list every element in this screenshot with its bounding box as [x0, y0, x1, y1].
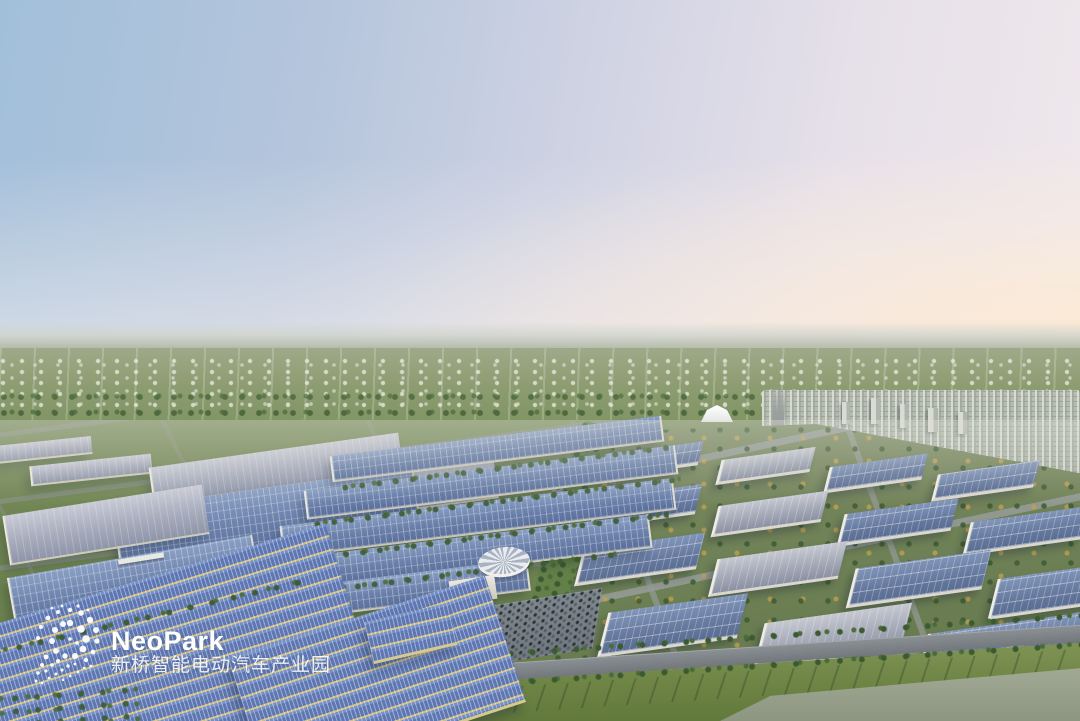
aerial-render-scene: NeoPark 新桥智能电动汽车产业园 [0, 0, 1080, 721]
city-tower [928, 408, 938, 432]
city-tower [842, 402, 850, 424]
sky-gradient [0, 0, 1080, 348]
city-tower [900, 404, 908, 428]
city-tower [958, 412, 967, 434]
city-tower [871, 398, 880, 424]
neopark-dot-cluster-logo-icon [34, 604, 102, 690]
brand-wordmark: NeoPark [111, 628, 224, 655]
brand-subtitle-chinese: 新桥智能电动汽车产业园 [111, 656, 331, 675]
watermark: NeoPark 新桥智能电动汽车产业园 [36, 602, 356, 702]
